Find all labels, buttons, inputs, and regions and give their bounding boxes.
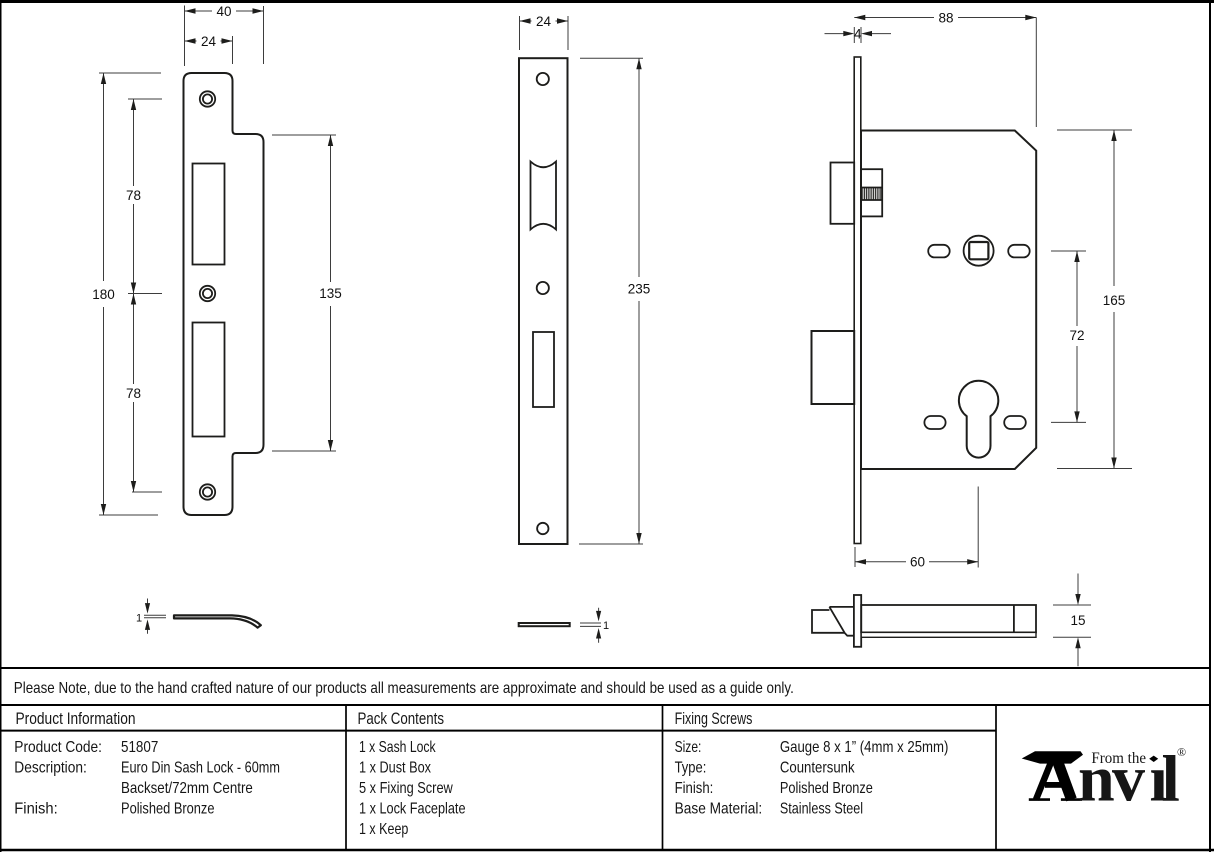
svg-text:Polished Bronze: Polished Bronze — [780, 780, 873, 797]
svg-text:n: n — [1078, 743, 1115, 816]
svg-text:Fixing Screws: Fixing Screws — [675, 709, 753, 728]
svg-text:1: 1 — [603, 620, 609, 632]
svg-text:Backset/72mm Centre: Backset/72mm Centre — [121, 780, 253, 797]
svg-text:40: 40 — [216, 4, 231, 19]
svg-text:Gauge 8 x 1” (4mm x 25mm): Gauge 8 x 1” (4mm x 25mm) — [780, 739, 949, 756]
svg-text:Countersunk: Countersunk — [780, 760, 855, 777]
svg-text:Base Material:: Base Material: — [675, 801, 763, 818]
svg-text:Euro Din Sash Lock - 60mm: Euro Din Sash Lock - 60mm — [121, 760, 280, 777]
svg-text:1 x Sash Lock: 1 x Sash Lock — [359, 739, 436, 756]
svg-text:Product Information: Product Information — [16, 709, 136, 728]
svg-text:24: 24 — [201, 34, 217, 49]
svg-text:165: 165 — [1103, 293, 1126, 308]
svg-text:15: 15 — [1070, 613, 1085, 628]
svg-text:60: 60 — [910, 555, 925, 570]
svg-text:235: 235 — [628, 281, 651, 296]
svg-text:1 x Dust Box: 1 x Dust Box — [359, 760, 431, 777]
svg-text:Please Note, due to the hand c: Please Note, due to the hand crafted nat… — [14, 680, 794, 697]
svg-text:51807: 51807 — [121, 739, 158, 756]
svg-text:Polished Bronze: Polished Bronze — [121, 801, 215, 818]
svg-text:Description:: Description: — [14, 760, 87, 777]
svg-text:78: 78 — [126, 386, 141, 401]
svg-text:78: 78 — [126, 188, 141, 203]
svg-text:Finish:: Finish: — [14, 801, 57, 818]
svg-text:4: 4 — [854, 27, 862, 42]
svg-text:180: 180 — [92, 287, 115, 302]
svg-text:®: ® — [1177, 745, 1186, 759]
svg-text:5 x Fixing Screw: 5 x Fixing Screw — [359, 780, 453, 797]
svg-text:Product Code:: Product Code: — [14, 739, 102, 756]
svg-text:1 x Keep: 1 x Keep — [359, 821, 409, 838]
svg-text:24: 24 — [536, 14, 552, 29]
svg-text:Size:: Size: — [675, 739, 702, 756]
svg-text:Pack Contents: Pack Contents — [358, 709, 445, 728]
svg-text:72: 72 — [1069, 328, 1084, 343]
svg-text:135: 135 — [319, 286, 342, 301]
svg-text:Stainless Steel: Stainless Steel — [780, 801, 863, 818]
svg-text:Finish:: Finish: — [675, 780, 714, 797]
svg-text:Type:: Type: — [675, 760, 707, 777]
svg-text:1: 1 — [136, 612, 142, 624]
svg-text:88: 88 — [938, 10, 953, 25]
svg-text:v: v — [1112, 743, 1145, 816]
svg-text:1 x Lock Faceplate: 1 x Lock Faceplate — [359, 801, 466, 818]
